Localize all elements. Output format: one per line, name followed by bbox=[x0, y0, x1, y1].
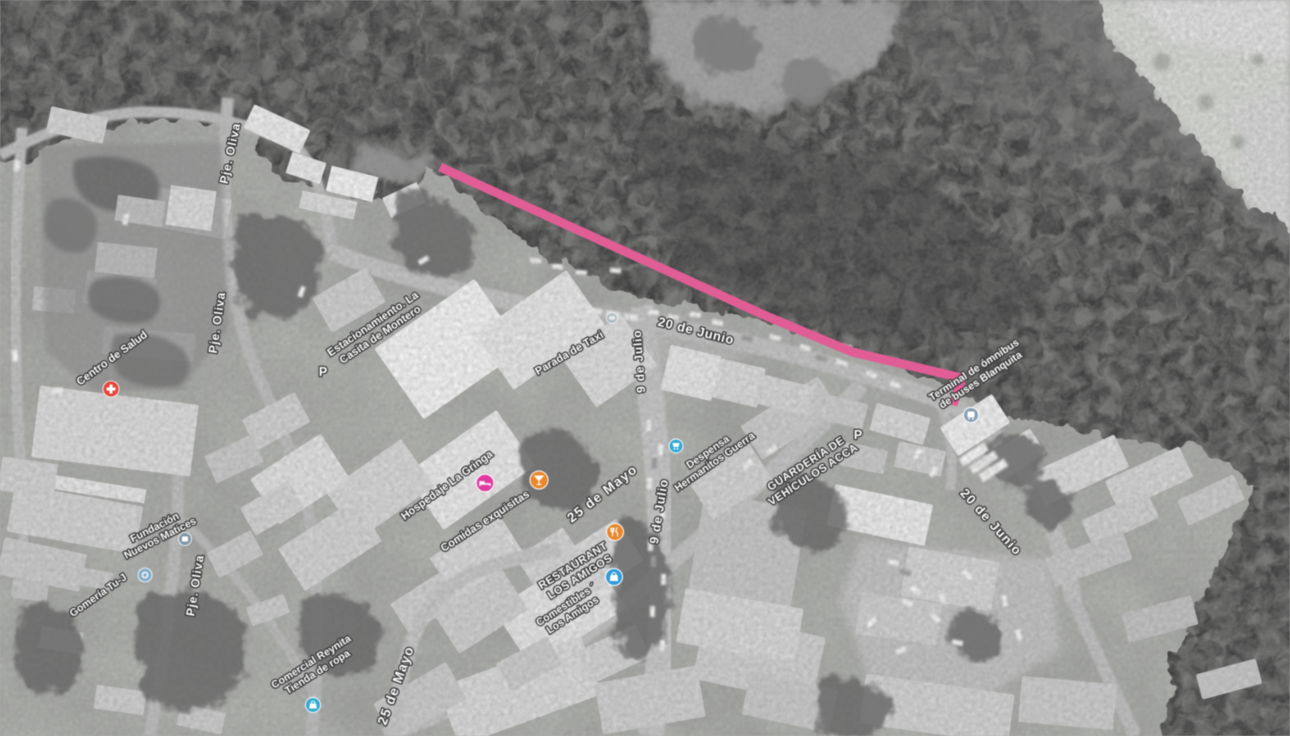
svg-text:P: P bbox=[854, 428, 862, 442]
svg-text:P: P bbox=[319, 365, 327, 379]
